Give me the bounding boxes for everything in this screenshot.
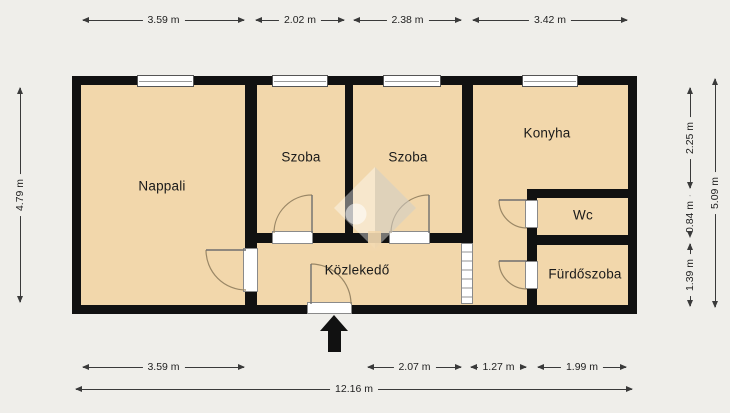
door-swings-layer [0,0,730,413]
room-label-wc: Wc [573,208,593,223]
door-arc-furdoszoba [499,261,527,289]
door-arc-nappali [206,250,246,290]
room-label-szoba-1: Szoba [281,150,320,165]
room-label-szoba-2: Szoba [388,150,427,165]
room-label-nappali: Nappali [138,179,185,194]
room-label-konyha: Konyha [524,126,571,141]
room-label-furdoszoba: Fürdőszoba [548,267,621,282]
door-arc-wc [499,200,527,228]
door-arc-szoba-1 [274,195,312,233]
floor-plan: 3.59 m 2.02 m 2.38 m 3.42 m 4.79 m 2.25 … [0,0,730,413]
house-logo-watermark-icon [334,167,416,251]
entrance-direction-up-arrow-icon [320,315,348,352]
room-label-kozlekedo: Közlekedő [325,263,390,278]
